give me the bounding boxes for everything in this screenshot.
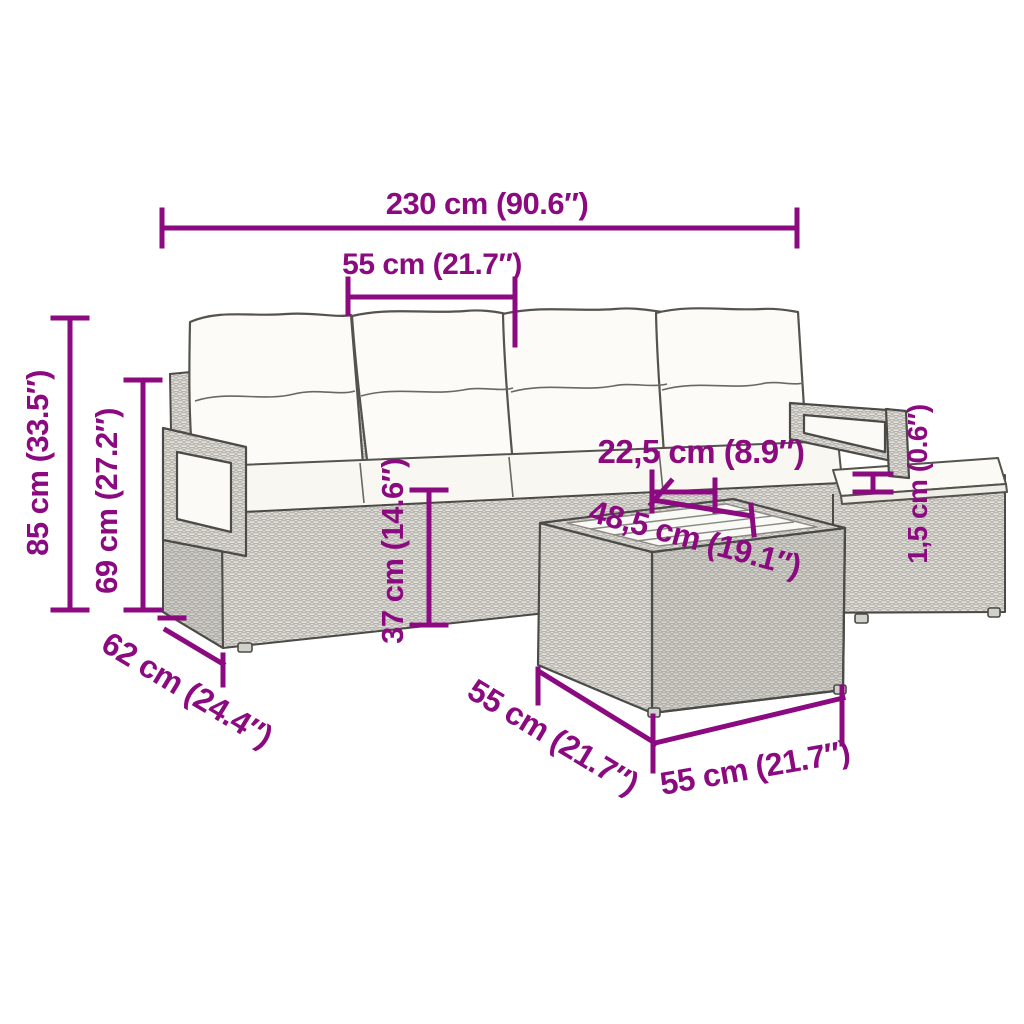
dim-label-overall-width: 230 cm (90.6″) — [386, 186, 589, 222]
dim-line-backrest-height — [126, 380, 160, 610]
dim-label-backrest-height: 69 cm (27.2″) — [89, 408, 125, 594]
dim-label-overall-height: 85 cm (33.5″) — [20, 370, 56, 556]
left-armrest — [163, 428, 246, 556]
furniture-illustration — [0, 0, 1024, 1024]
dimension-diagram: 230 cm (90.6″) 55 cm (21.7″) 85 cm (33.5… — [0, 0, 1024, 1024]
dim-label-armrest-clearance: 22,5 cm (8.9″) — [598, 433, 805, 471]
dim-label-seat-height: 37 cm (14.6″) — [375, 458, 411, 644]
dim-label-seat-width: 55 cm (21.7″) — [342, 248, 522, 282]
dim-label-cushion-thickness: 1,5 cm (0.6″) — [902, 404, 934, 563]
dim-line-overall-height — [53, 318, 87, 610]
